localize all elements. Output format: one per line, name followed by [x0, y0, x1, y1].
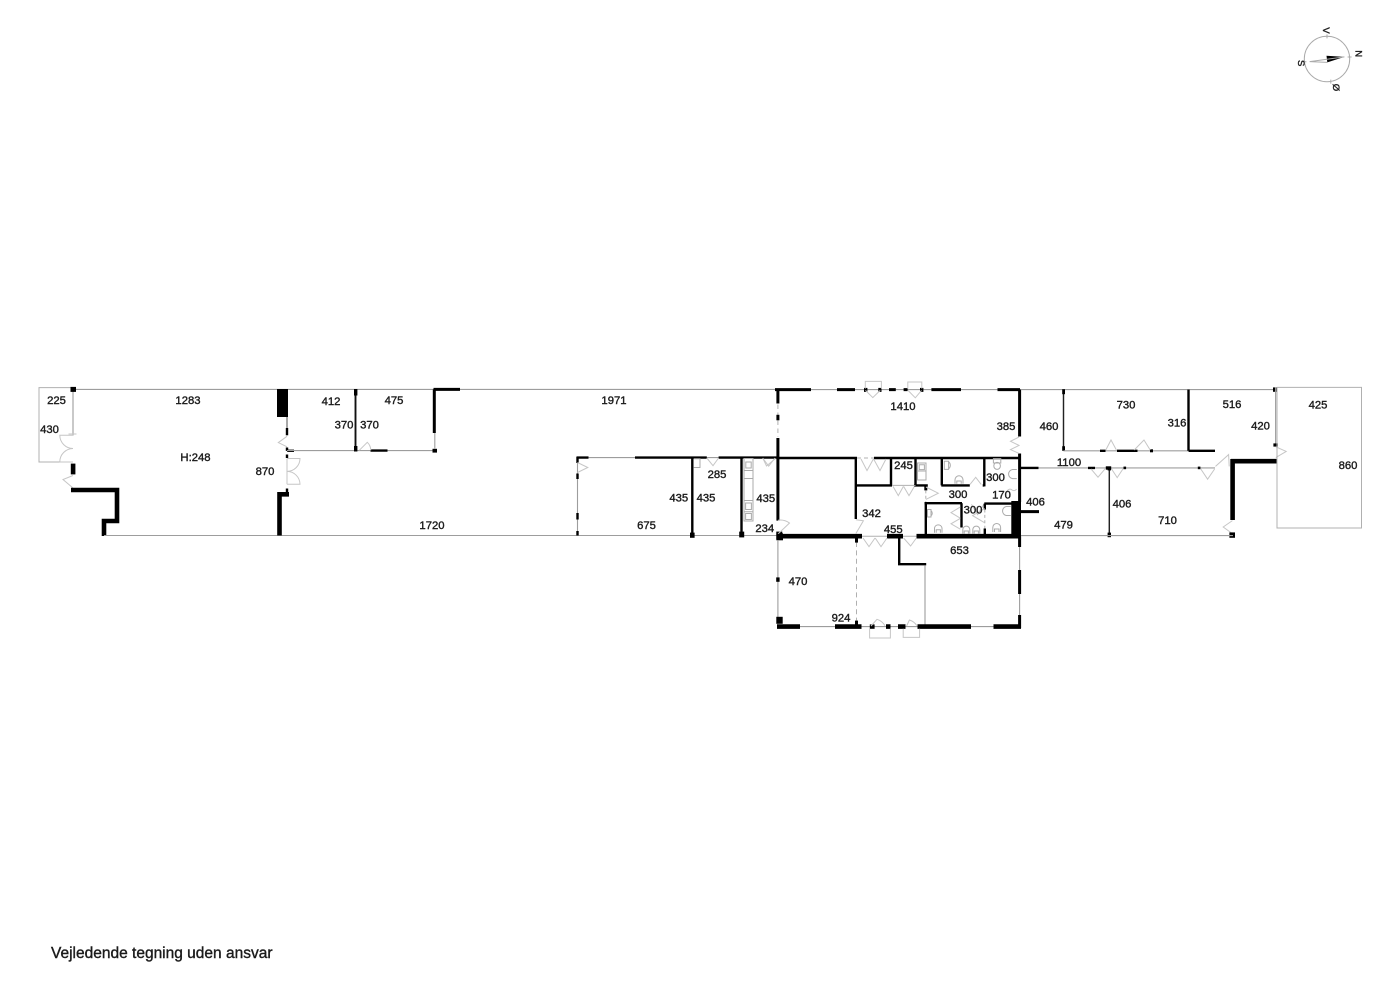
svg-text:170: 170: [992, 490, 1011, 502]
svg-text:435: 435: [669, 493, 688, 505]
svg-text:S: S: [1295, 60, 1306, 66]
svg-text:420: 420: [1251, 421, 1270, 433]
svg-text:406: 406: [1026, 497, 1045, 509]
svg-text:710: 710: [1158, 515, 1177, 527]
svg-text:300: 300: [986, 472, 1005, 484]
svg-text:316: 316: [1168, 418, 1187, 430]
svg-text:412: 412: [322, 396, 341, 408]
svg-text:370: 370: [360, 420, 379, 432]
svg-text:1971: 1971: [601, 395, 626, 407]
svg-text:Vejledende tegning uden ansvar: Vejledende tegning uden ansvar: [51, 945, 273, 962]
svg-text:675: 675: [637, 520, 656, 532]
svg-text:430: 430: [40, 424, 59, 436]
svg-text:370: 370: [335, 420, 354, 432]
svg-text:470: 470: [789, 576, 808, 588]
svg-text:Ø: Ø: [1330, 84, 1341, 92]
svg-text:475: 475: [385, 395, 404, 407]
svg-text:435: 435: [756, 493, 775, 505]
svg-text:479: 479: [1054, 520, 1073, 532]
svg-text:653: 653: [950, 545, 969, 557]
svg-text:516: 516: [1223, 399, 1242, 411]
svg-text:234: 234: [755, 523, 774, 535]
svg-text:385: 385: [997, 421, 1016, 433]
svg-text:425: 425: [1309, 400, 1328, 412]
svg-text:924: 924: [832, 613, 851, 625]
svg-text:1283: 1283: [175, 395, 200, 407]
svg-text:1720: 1720: [419, 520, 444, 532]
svg-text:406: 406: [1113, 499, 1132, 511]
svg-text:860: 860: [1339, 460, 1358, 472]
svg-text:435: 435: [697, 493, 716, 505]
svg-text:225: 225: [47, 395, 66, 407]
svg-text:1410: 1410: [890, 401, 915, 413]
svg-text:V: V: [1320, 27, 1331, 34]
svg-text:N: N: [1352, 50, 1363, 57]
svg-text:870: 870: [256, 466, 275, 478]
svg-text:342: 342: [862, 508, 881, 520]
svg-text:1100: 1100: [1057, 457, 1081, 469]
svg-text:245: 245: [894, 460, 913, 472]
svg-text:455: 455: [884, 524, 903, 536]
svg-text:H:248: H:248: [180, 452, 210, 464]
svg-text:300: 300: [964, 505, 983, 517]
svg-text:285: 285: [708, 469, 727, 481]
svg-text:300: 300: [949, 489, 968, 501]
svg-text:460: 460: [1040, 421, 1059, 433]
svg-text:730: 730: [1117, 400, 1136, 412]
